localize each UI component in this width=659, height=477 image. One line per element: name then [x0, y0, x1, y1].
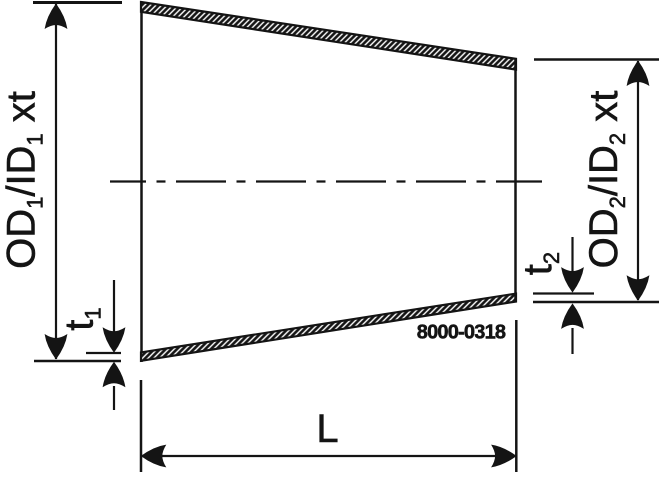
svg-text:L: L [316, 407, 338, 451]
svg-text:8000-0318: 8000-0318 [417, 322, 506, 344]
svg-text:OD1/ID1 xt: OD1/ID1 xt [0, 91, 48, 269]
svg-text:OD2/ID2 xt: OD2/ID2 xt [582, 91, 630, 269]
